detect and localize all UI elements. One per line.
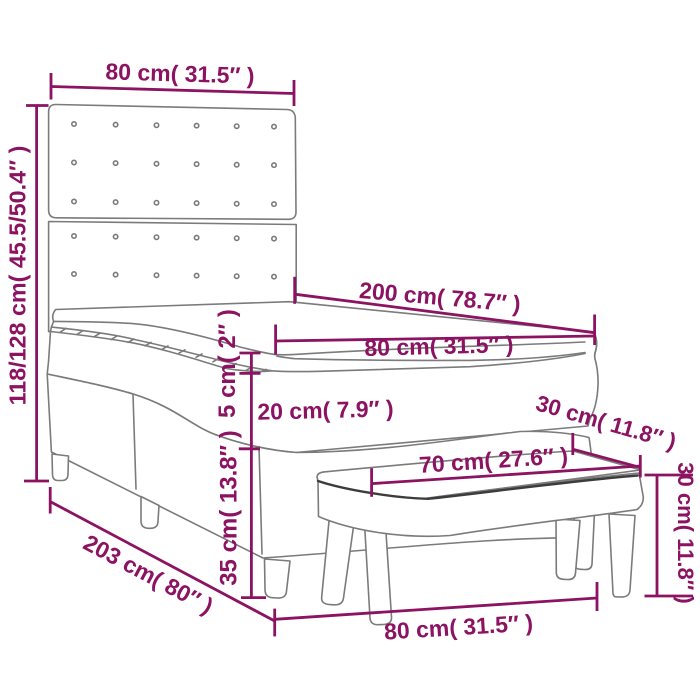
svg-text:30 cm( 11.8″ ): 30 cm( 11.8″ ) — [673, 462, 698, 603]
svg-text:118/128 cm( 45.5/50.4″ ): 118/128 cm( 45.5/50.4″ ) — [5, 146, 31, 406]
svg-text:80 cm( 31.5″ ): 80 cm( 31.5″ ) — [364, 331, 514, 361]
svg-text:35 cm( 13.8″ ): 35 cm( 13.8″ ) — [216, 430, 243, 586]
svg-text:20 cm( 7.9″ ): 20 cm( 7.9″ ) — [257, 395, 394, 425]
svg-text:80 cm( 31.5″ ): 80 cm( 31.5″ ) — [105, 58, 255, 88]
svg-text:5 cm( 2″ ): 5 cm( 2″ ) — [214, 309, 241, 418]
